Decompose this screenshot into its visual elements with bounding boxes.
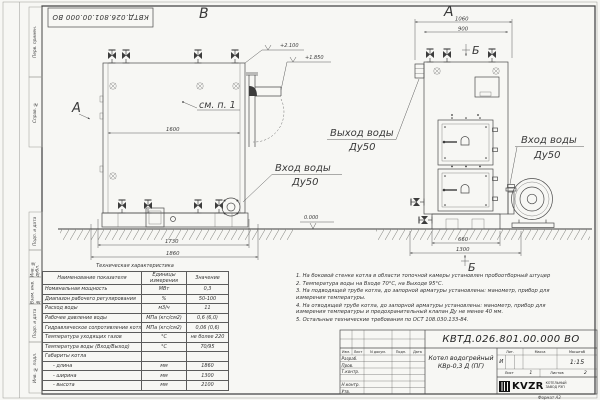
elev-0000: 0.000	[304, 215, 318, 221]
product-name: Котел водогрейный КВр-0,3 Д (ПГ)	[426, 350, 496, 376]
spec-cell: Номинальная мощность	[43, 285, 142, 295]
sheet-cell: Лист 1	[497, 370, 540, 377]
top-corner-stamp: КВТД.026.801.00.000 ВО	[48, 8, 153, 27]
note-item: 3. На подводящей трубе котла, до запорно…	[296, 288, 568, 301]
spec-cell: м3/ч	[142, 304, 187, 314]
rev-col-doc: N докум.	[364, 349, 392, 355]
role-prov: Пров.	[342, 363, 364, 368]
spec-cell: Температура воды (Вход/Выход)	[43, 342, 142, 352]
company-line2: ЗАВОД РЭП	[546, 386, 567, 390]
spec-cell: Рабочее давление воды	[43, 313, 142, 323]
sheets-label: Листов	[550, 371, 563, 375]
role-tkontr: Т.контр.	[342, 369, 364, 374]
spec-cell: 70/95	[187, 342, 229, 352]
kvzr-logo-text: KVZR	[512, 381, 544, 392]
technical-notes: 1. На боковой стенке котла в области топ…	[296, 273, 568, 325]
drawing-designation: КВТД.026.801.00.000 ВО	[425, 331, 597, 348]
spec-table: Техническая характеристика Наименование …	[42, 263, 228, 391]
rev-col-data: Дата	[410, 349, 425, 355]
note-item: 4. На отводящей трубе котла, до запорной…	[296, 303, 568, 316]
spec-cell: Расход воды	[43, 304, 142, 314]
spec-row: - длинамм1860	[43, 361, 229, 371]
elev-1850: +1.850	[305, 55, 324, 61]
mass-header: Масса	[523, 349, 557, 355]
spec-cell: °С	[142, 342, 187, 352]
ground-line	[58, 229, 592, 240]
spec-cell: 1300	[187, 371, 229, 381]
dim-1730: 1730	[165, 239, 179, 245]
note-item: 1. На боковой стенке котла в области топ…	[296, 273, 568, 280]
spec-cell: 1860	[187, 361, 229, 371]
spec-row: Рабочее давление водыМПа (кгс/см2)0,6 (6…	[43, 313, 229, 323]
spec-table-title: Техническая характеристика	[42, 263, 228, 269]
spec-row: Диапазон рабочего регулирования%50-100	[43, 294, 229, 304]
section-a-label: А	[71, 101, 81, 116]
spec-cell: Температура уходящих газов	[43, 332, 142, 342]
frame-label-podp-data-2: Подп. и дата	[29, 304, 42, 342]
frame-label-vzam-inv: Взам. инв. №	[29, 277, 42, 304]
front-inlet-label: Вход воды	[275, 163, 331, 174]
spec-cell: мм	[142, 371, 187, 381]
spec-cell: 0,06 (0,6)	[187, 323, 229, 333]
lit-header: Лит.	[497, 349, 523, 355]
spec-row: Температура воды (Вход/Выход)°С70/95	[43, 342, 229, 352]
frame-label-sprav-no: Справ. №	[29, 77, 42, 147]
elev-2100: +2.100	[280, 43, 299, 49]
format-label: Формат А3	[538, 395, 561, 400]
spec-header-cell: Единицы измерения	[142, 272, 187, 285]
spec-cell: мм	[142, 380, 187, 390]
company-name: КОТЕЛЬНЫЙ ЗАВОД РЭП	[546, 382, 567, 389]
outlet-label: Выход воды	[330, 128, 394, 139]
spec-cell: - высота	[43, 380, 142, 390]
spec-row: - ширинамм1300	[43, 371, 229, 381]
sheet-label: Лист	[505, 371, 514, 375]
rev-col-podp: Подп.	[392, 349, 410, 355]
spec-cell: МПа (кгс/см2)	[142, 323, 187, 333]
frame-label-inv-dubl: Инв. № дубл.	[29, 250, 42, 277]
kvzr-logo-icon	[499, 381, 510, 392]
role-utv: Утв.	[342, 389, 364, 394]
spec-cell: 11	[187, 304, 229, 314]
spec-cell	[142, 352, 187, 362]
role-nkontr: Н.контр.	[342, 382, 364, 387]
spec-row: - высотамм2100	[43, 380, 229, 390]
spec-cell: 0,6 (6,0)	[187, 313, 229, 323]
dim-1300: 1300	[456, 247, 470, 253]
spec-header-row: Наименование показателя Единицы измерени…	[43, 272, 229, 285]
dim-1600: 1600	[166, 127, 180, 133]
spec-cell: - ширина	[43, 371, 142, 381]
spec-row: Номинальная мощностьМВт0,3	[43, 285, 229, 295]
spec-cell: Габариты котла	[43, 352, 142, 362]
spec-cell: 2100	[187, 380, 229, 390]
scale-value: 1:15	[557, 356, 597, 368]
sheets-cell: Листов 2	[540, 370, 597, 377]
spec-cell: МВт	[142, 285, 187, 295]
side-inlet-size: Ду50	[533, 150, 560, 161]
frame-label-inv-podl: Инв. № подл.	[29, 342, 42, 393]
scale-header: Масштаб	[557, 349, 597, 355]
lit-value: И	[497, 356, 506, 368]
spec-cell: Диапазон рабочего регулирования	[43, 294, 142, 304]
spec-row: Гидравлическое сопротивление котлаМПа (к…	[43, 323, 229, 333]
spec-header-cell: Наименование показателя	[43, 272, 142, 285]
spec-cell: %	[142, 294, 187, 304]
frame-label-perv-primen: Перв. примен.	[29, 7, 42, 77]
spec-cell: Гидравлическое сопротивление котла	[43, 323, 142, 333]
spec-cell: не более 220	[187, 332, 229, 342]
front-inlet-size: Ду50	[291, 177, 318, 188]
note-item: 2. Температура воды на Входе 70°С, на Вы…	[296, 281, 568, 288]
spec-cell: мм	[142, 361, 187, 371]
side-view-label: А	[443, 4, 454, 20]
spec-cell: МПа (кгс/см2)	[142, 313, 187, 323]
frame-label-podp-data-1: Подп. и дата	[29, 212, 42, 250]
sheets-value: 2	[584, 371, 587, 376]
spec-header-cell: Значение	[187, 272, 229, 285]
rev-col-list: Лист	[352, 349, 364, 355]
section-b-top-label: Б	[472, 44, 480, 57]
company-logo-cell: KVZR КОТЕЛЬНЫЙ ЗАВОД РЭП	[499, 379, 595, 394]
front-view-drawing: 1600 1730 1860 В А см. п. 1 +2.100 +1.85…	[71, 6, 342, 260]
spec-cell: 50-100	[187, 294, 229, 304]
spec-row: Расход водым3/ч11	[43, 304, 229, 314]
dim-900: 900	[458, 27, 469, 33]
sheet-value: 1	[529, 371, 532, 376]
spec-cell	[187, 352, 229, 362]
drawing-sheet: 1600 1730 1860 В А см. п. 1 +2.100 +1.85…	[0, 0, 600, 400]
spec-cell: 0,3	[187, 285, 229, 295]
rev-col-izm: Изм.	[340, 349, 352, 355]
dim-1860: 1860	[166, 251, 180, 257]
spec-cell: °С	[142, 332, 187, 342]
note-item: 5. Остальные технические требования по О…	[296, 317, 568, 324]
see-note-label: см. п. 1	[199, 100, 236, 111]
outlet-size: Ду50	[348, 142, 375, 153]
dim-1060: 1060	[455, 17, 469, 23]
spec-row: Габариты котла	[43, 352, 229, 362]
side-inlet-label: Вход воды	[521, 135, 577, 146]
spec-row: Температура уходящих газов°Сне более 220	[43, 332, 229, 342]
spec-cell: - длина	[43, 361, 142, 371]
front-view-label: В	[199, 6, 209, 22]
role-razrab: Разраб.	[342, 356, 364, 361]
dim-660: 660	[458, 237, 469, 243]
